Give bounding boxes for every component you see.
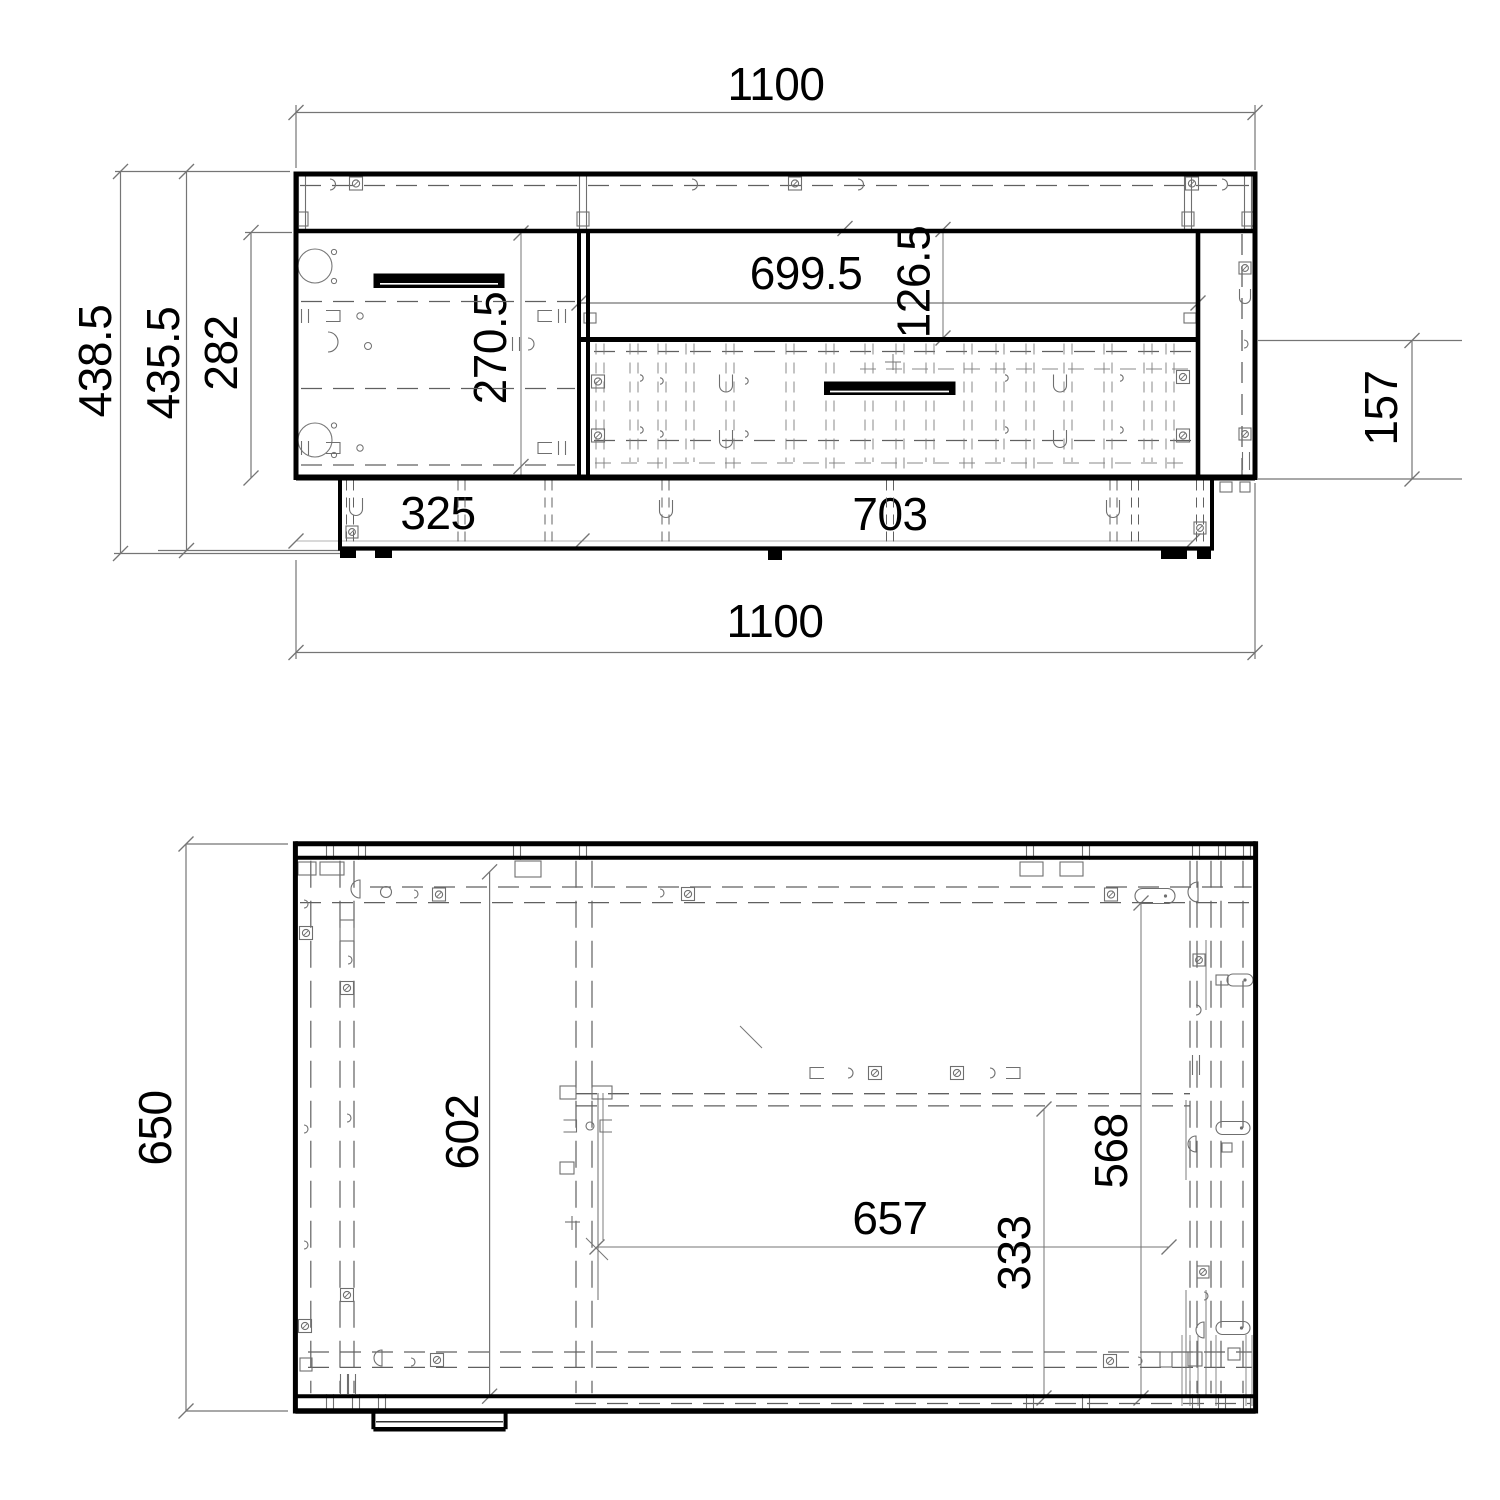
svg-text:1100: 1100	[728, 58, 825, 110]
svg-text:157: 157	[1355, 370, 1407, 445]
svg-text:438.5: 438.5	[69, 305, 121, 418]
svg-text:703: 703	[852, 488, 927, 540]
svg-text:333: 333	[988, 1215, 1040, 1290]
svg-text:282: 282	[195, 315, 247, 390]
svg-text:1100: 1100	[727, 595, 824, 647]
svg-text:657: 657	[852, 1192, 927, 1244]
svg-text:126.5: 126.5	[888, 226, 940, 339]
svg-text:435.5: 435.5	[137, 307, 189, 420]
svg-text:650: 650	[129, 1090, 181, 1165]
svg-text:602: 602	[436, 1094, 488, 1169]
svg-text:270.5: 270.5	[464, 292, 516, 405]
svg-text:699.5: 699.5	[750, 247, 863, 299]
svg-text:325: 325	[400, 487, 475, 539]
svg-text:568: 568	[1085, 1113, 1137, 1188]
